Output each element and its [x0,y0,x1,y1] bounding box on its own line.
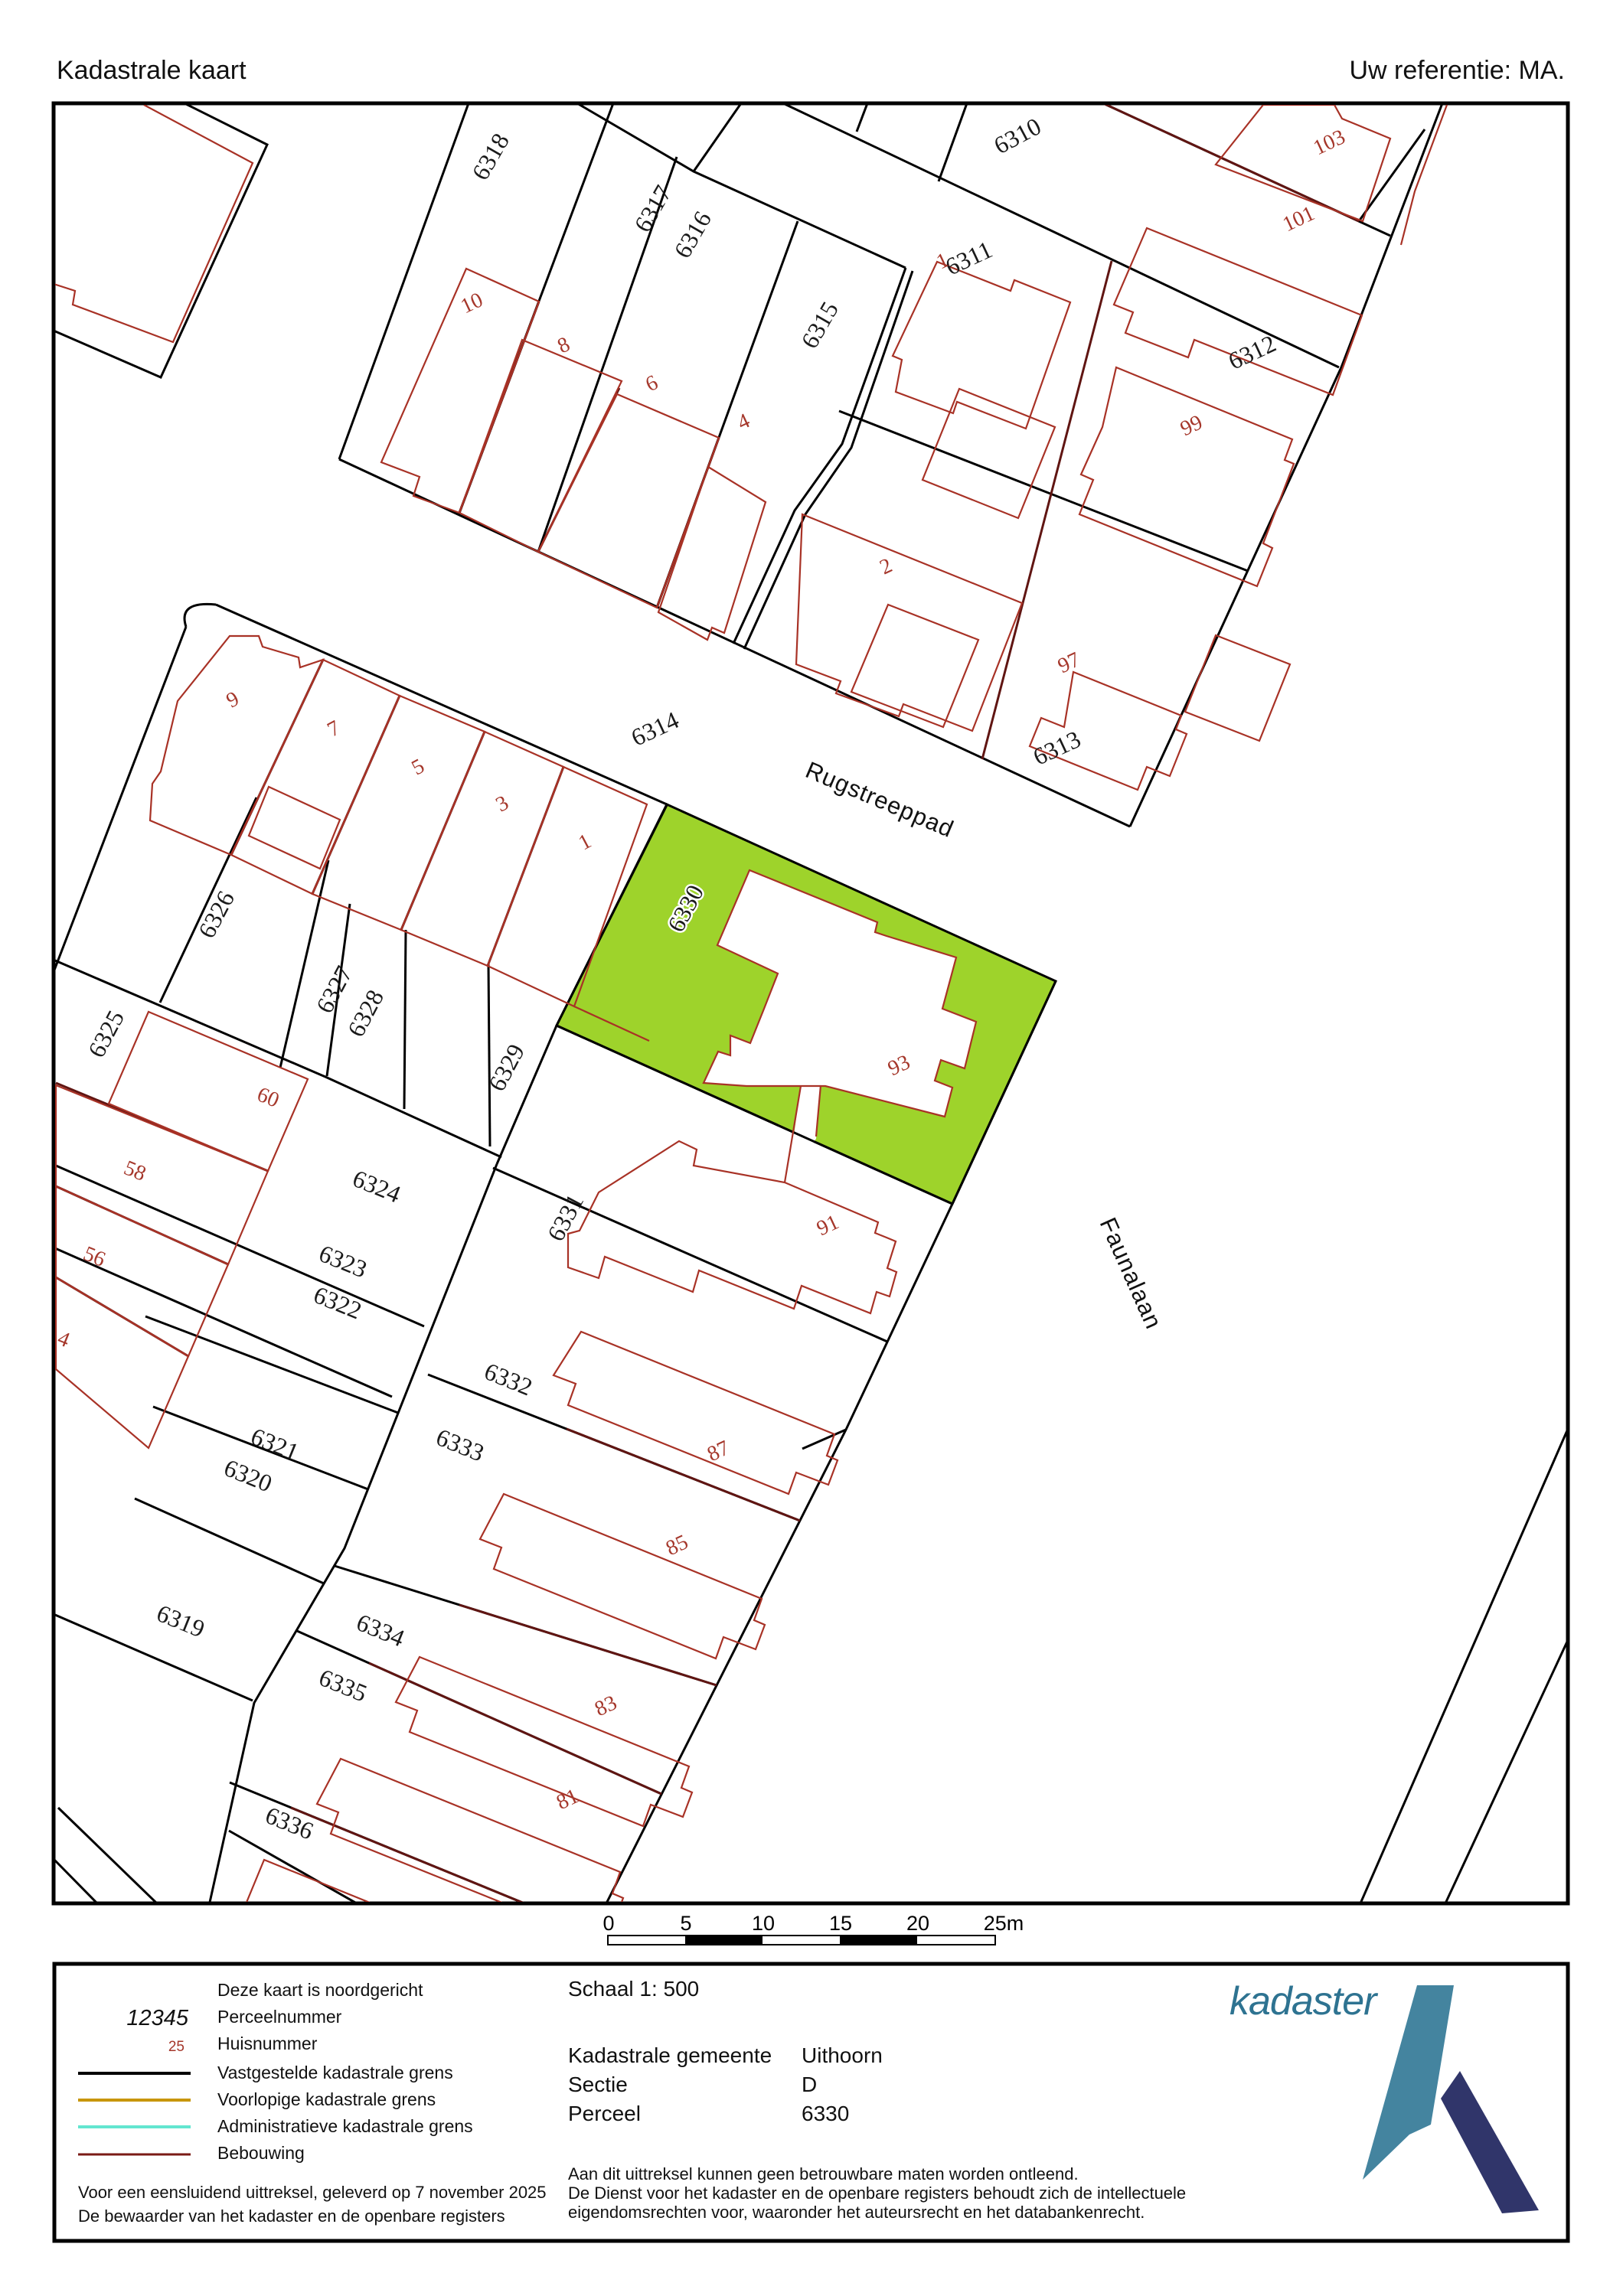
svg-text:Schaal 1: 500: Schaal 1: 500 [568,1977,699,2001]
svg-text:9: 9 [223,687,243,713]
svg-text:6319: 6319 [153,1599,209,1642]
svg-text:Huisnummer: Huisnummer [217,2033,318,2053]
svg-text:81: 81 [553,1784,582,1815]
svg-text:Perceelnummer: Perceelnummer [217,2007,342,2027]
svg-text:85: 85 [662,1530,691,1561]
svg-text:103: 103 [1310,125,1349,160]
svg-text:10: 10 [457,288,486,318]
svg-text:kadaster: kadaster [1229,1979,1379,2024]
svg-text:Uw referentie: MA.: Uw referentie: MA. [1349,56,1565,85]
svg-text:10: 10 [752,1912,775,1935]
svg-text:58: 58 [120,1156,149,1186]
svg-text:Deze kaart is noordgericht: Deze kaart is noordgericht [217,1980,423,2000]
svg-text:De bewaarder van het kadaster: De bewaarder van het kadaster en de open… [78,2206,505,2226]
svg-text:6325: 6325 [82,1006,129,1062]
svg-text:Faunalaan: Faunalaan [1095,1214,1167,1333]
svg-text:D: D [802,2073,817,2096]
svg-text:56: 56 [80,1242,109,1272]
svg-text:7: 7 [324,716,345,742]
svg-text:Bebouwing: Bebouwing [217,2143,305,2163]
svg-text:6318: 6318 [466,129,514,184]
svg-text:12345: 12345 [126,2006,189,2030]
svg-text:101: 101 [1279,201,1318,236]
svg-text:Administratieve kadastrale gre: Administratieve kadastrale grens [217,2116,473,2136]
svg-text:6334: 6334 [353,1608,409,1652]
svg-text:Uithoorn: Uithoorn [802,2043,883,2067]
svg-text:2: 2 [877,553,896,579]
svg-text:6333: 6333 [433,1423,488,1466]
svg-text:6331: 6331 [541,1189,589,1245]
svg-text:83: 83 [591,1691,620,1721]
svg-text:0: 0 [603,1912,614,1935]
svg-text:Voorlopige kadastrale grens: Voorlopige kadastrale grens [217,2089,436,2109]
svg-text:De Dienst voor het kadaster en: De Dienst voor het kadaster en de openba… [568,2183,1186,2203]
svg-text:6: 6 [642,370,662,396]
svg-text:5: 5 [680,1912,691,1935]
svg-text:Perceel: Perceel [568,2102,641,2125]
svg-text:6320: 6320 [220,1453,276,1497]
svg-text:6328: 6328 [341,985,389,1041]
svg-text:Rugstreeppad: Rugstreeppad [802,756,958,843]
svg-text:Kadastrale kaart: Kadastrale kaart [57,56,247,85]
svg-text:6316: 6316 [668,207,717,263]
svg-text:6314: 6314 [627,706,683,752]
svg-text:Vastgestelde kadastrale grens: Vastgestelde kadastrale grens [217,2063,453,2082]
svg-text:6327: 6327 [310,961,358,1017]
svg-text:20: 20 [906,1912,929,1935]
svg-text:99: 99 [1177,410,1206,441]
svg-text:6313: 6313 [1029,725,1085,771]
svg-text:6336: 6336 [262,1801,318,1844]
svg-text:6332: 6332 [481,1357,537,1401]
svg-text:Voor een eensluidend uittrekse: Voor een eensluidend uittreksel, gelever… [78,2183,547,2202]
svg-text:25: 25 [168,2039,185,2055]
svg-text:4: 4 [734,409,754,435]
svg-text:Kadastrale gemeente: Kadastrale gemeente [568,2043,772,2067]
svg-text:3: 3 [492,791,513,817]
svg-text:eigendomsrechten voor, waarond: eigendomsrechten voor, waaronder het aut… [568,2203,1145,2222]
svg-text:6317: 6317 [629,181,677,236]
svg-text:Sectie: Sectie [568,2073,628,2096]
svg-text:6310: 6310 [989,112,1045,159]
svg-text:6321: 6321 [247,1422,303,1466]
svg-text:6326: 6326 [192,886,240,942]
svg-text:6324: 6324 [349,1164,405,1208]
svg-text:6335: 6335 [315,1663,371,1707]
svg-text:91: 91 [813,1210,842,1241]
svg-text:6322: 6322 [310,1280,366,1324]
svg-text:5: 5 [408,755,429,781]
svg-text:15: 15 [829,1912,852,1935]
svg-text:6315: 6315 [795,297,844,353]
svg-text:6323: 6323 [315,1239,371,1283]
svg-text:4: 4 [54,1326,73,1352]
svg-text:Aan dit uittreksel kunnen geen: Aan dit uittreksel kunnen geen betrouwba… [568,2164,1079,2183]
svg-text:1: 1 [575,830,596,856]
svg-text:6330: 6330 [802,2102,849,2125]
svg-text:60: 60 [253,1083,282,1113]
svg-text:25m: 25m [984,1912,1024,1935]
